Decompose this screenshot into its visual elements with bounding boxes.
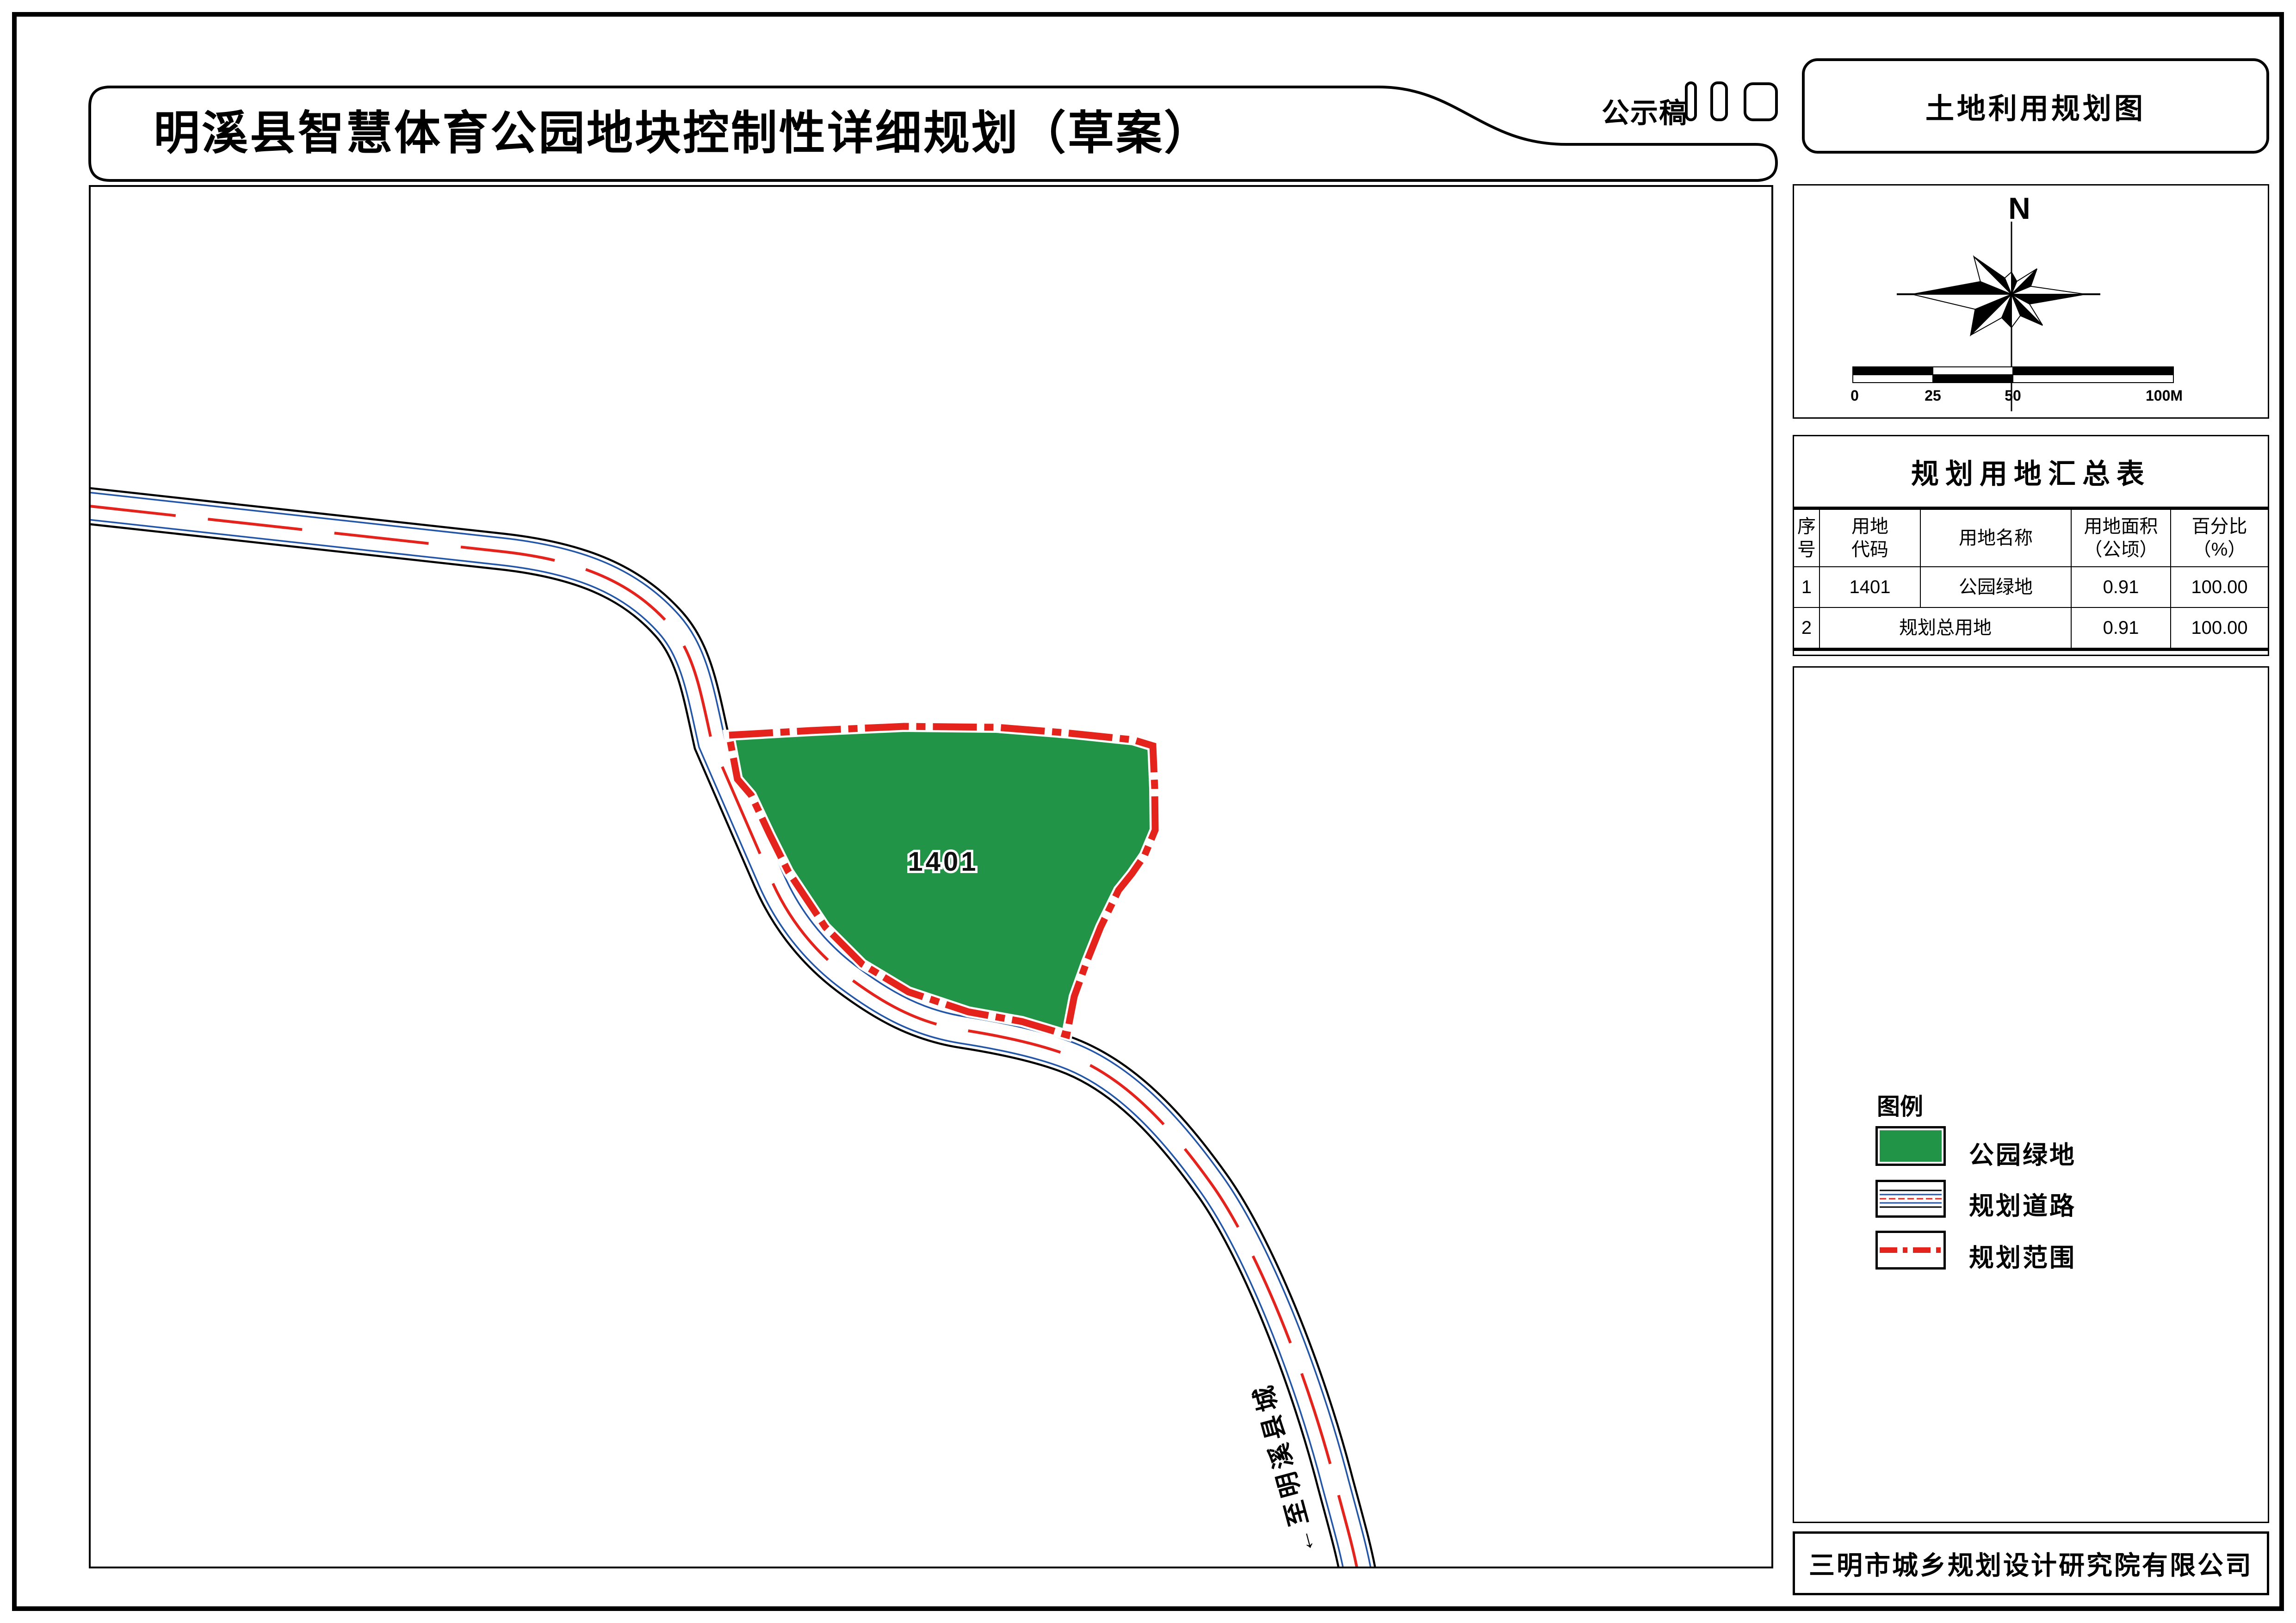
summary-table-title: 规划用地汇总表 bbox=[1794, 436, 2268, 507]
wind-rose bbox=[1912, 257, 2086, 335]
legend-title: 图例 bbox=[1877, 1088, 1923, 1121]
col-header-area: 用地面积 （公顷） bbox=[2072, 510, 2171, 567]
legend-swatch-park-green bbox=[1875, 1126, 1946, 1166]
land-use-summary-table: 规划用地汇总表 序 号 用地 代码 用地名称 用地面积 （公顷） 百分比 （%）… bbox=[1793, 435, 2269, 656]
table-top-rule bbox=[1794, 507, 2268, 510]
table-bottom-rule bbox=[1794, 648, 2268, 651]
legend-swatch-planned-road bbox=[1875, 1180, 1946, 1218]
table-cell: 1401 bbox=[1820, 567, 1921, 608]
table-cell: 100.00 bbox=[2171, 567, 2268, 608]
legend-label-planned-road: 规划道路 bbox=[1969, 1185, 2076, 1222]
planned-road bbox=[91, 505, 1358, 1568]
design-institute-box: 三明市城乡规划设计研究院有限公司 bbox=[1793, 1531, 2269, 1595]
park-green-fill bbox=[1880, 1130, 1942, 1162]
table-cell: 公园绿地 bbox=[1921, 567, 2072, 608]
table-cell: 0.91 bbox=[2072, 567, 2171, 608]
table-cell: 0.91 bbox=[2072, 608, 2171, 648]
stamp-pill-large bbox=[1744, 82, 1778, 121]
parcel-code-label: 1401 bbox=[908, 847, 978, 877]
scale-bar bbox=[1853, 367, 2173, 383]
legend-label-planning-boundary: 规划范围 bbox=[1969, 1237, 2076, 1274]
col-header-name: 用地名称 bbox=[1921, 510, 2072, 567]
sheet-name-box: 土地利用规划图 bbox=[1802, 58, 2269, 154]
stamp-pill-medium bbox=[1710, 81, 1728, 121]
scale-tick-25: 25 bbox=[1925, 387, 1941, 404]
col-header-code: 用地 代码 bbox=[1820, 510, 1921, 567]
parcel-1401: 1401 bbox=[729, 726, 1155, 1035]
table-cell: 2 bbox=[1794, 608, 1820, 648]
col-header-percent: 百分比 （%） bbox=[2171, 510, 2268, 567]
road-centerline bbox=[91, 505, 1358, 1568]
map-canvas: 1401 ←至明溪县城 bbox=[89, 185, 1773, 1568]
table-cell: 100.00 bbox=[2171, 608, 2268, 648]
table-cell: 规划总用地 bbox=[1820, 608, 2072, 648]
compass-scale-box: N bbox=[1793, 184, 2269, 419]
page-title: 明溪县智慧体育公园地块控制性详细规划（草案） bbox=[154, 95, 1356, 162]
legend-panel bbox=[1793, 666, 2269, 1523]
table-cell: 1 bbox=[1794, 567, 1820, 608]
scale-tick-50: 50 bbox=[2005, 387, 2021, 404]
design-institute-name: 三明市城乡规划设计研究院有限公司 bbox=[1809, 1545, 2253, 1582]
scale-tick-100: 100M bbox=[2146, 387, 2183, 404]
legend-swatch-planning-boundary bbox=[1875, 1231, 1946, 1270]
stamp-pill-small bbox=[1685, 81, 1697, 121]
north-label: N bbox=[2008, 191, 2030, 225]
legend-label-park-green: 公园绿地 bbox=[1969, 1134, 2076, 1171]
scale-tick-0: 0 bbox=[1850, 387, 1859, 404]
col-header-no: 序 号 bbox=[1794, 510, 1820, 567]
sheet-name: 土地利用规划图 bbox=[1925, 85, 2146, 127]
summary-table-grid: 序 号 用地 代码 用地名称 用地面积 （公顷） 百分比 （%） 1 1401 … bbox=[1794, 510, 2268, 648]
public-notice-stamp: 公示稿 bbox=[1602, 91, 1688, 131]
